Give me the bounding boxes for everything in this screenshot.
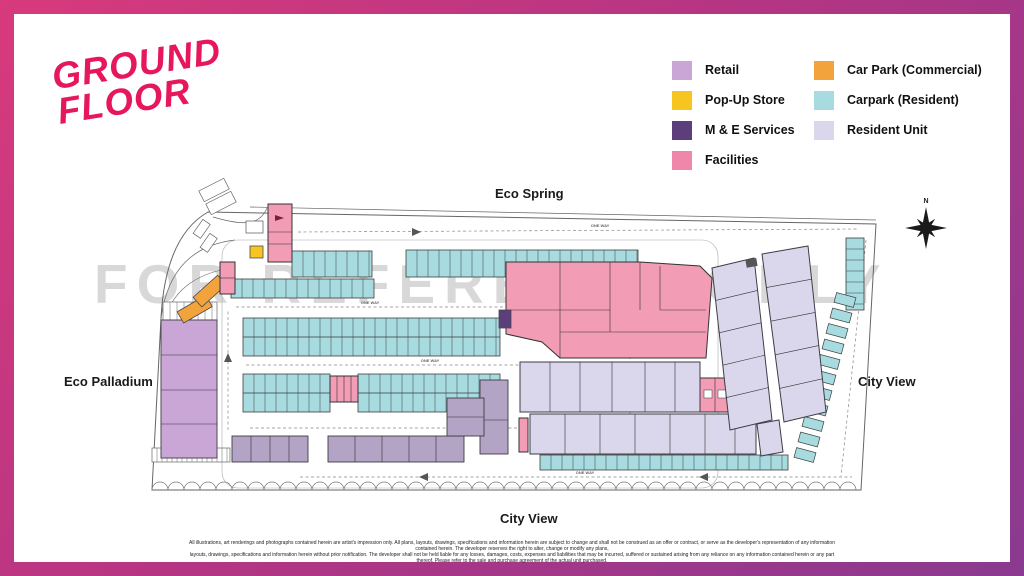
label-eco-palladium: Eco Palladium	[64, 374, 153, 389]
legend-item-carpark-commercial: Car Park (Commercial)	[814, 55, 982, 85]
legend-label: Pop-Up Store	[705, 93, 785, 107]
legend-item-me-services: M & E Services	[672, 115, 795, 145]
legend-label: M & E Services	[705, 123, 795, 137]
retail-swatch	[672, 61, 692, 80]
popup-store-swatch	[672, 91, 692, 110]
gradient-frame: FOR REFERENCE ONLY	[0, 0, 1024, 576]
label-city-view-right: City View	[858, 374, 916, 389]
carpark-resident-swatch	[814, 91, 834, 110]
label-city-view-bottom: City View	[500, 511, 558, 526]
legend-column-1: Retail Pop-Up Store M & E Services Facil…	[672, 55, 795, 175]
legend-label: Facilities	[705, 153, 759, 167]
legend-label: Retail	[705, 63, 739, 77]
resident-unit-swatch	[814, 121, 834, 140]
legend-item-popup-store: Pop-Up Store	[672, 85, 795, 115]
legend-column-2: Car Park (Commercial) Carpark (Resident)…	[814, 55, 982, 145]
disclaimer-line1: All illustrations, art renderings and ph…	[186, 540, 838, 552]
legend-item-facilities: Facilities	[672, 145, 795, 175]
legend-item-resident-unit: Resident Unit	[814, 115, 982, 145]
legend-label: Resident Unit	[847, 123, 928, 137]
facilities-swatch	[672, 151, 692, 170]
disclaimer: All illustrations, art renderings and ph…	[186, 540, 838, 564]
legend-item-carpark-resident: Carpark (Resident)	[814, 85, 982, 115]
me-services-swatch	[672, 121, 692, 140]
watermark: FOR REFERENCE ONLY	[94, 252, 890, 316]
disclaimer-line2: layouts, drawings, specifications and in…	[186, 552, 838, 564]
legend-item-retail: Retail	[672, 55, 795, 85]
legend-label: Car Park (Commercial)	[847, 63, 982, 77]
carpark-commercial-swatch	[814, 61, 834, 80]
label-eco-spring: Eco Spring	[495, 186, 564, 201]
legend-label: Carpark (Resident)	[847, 93, 959, 107]
